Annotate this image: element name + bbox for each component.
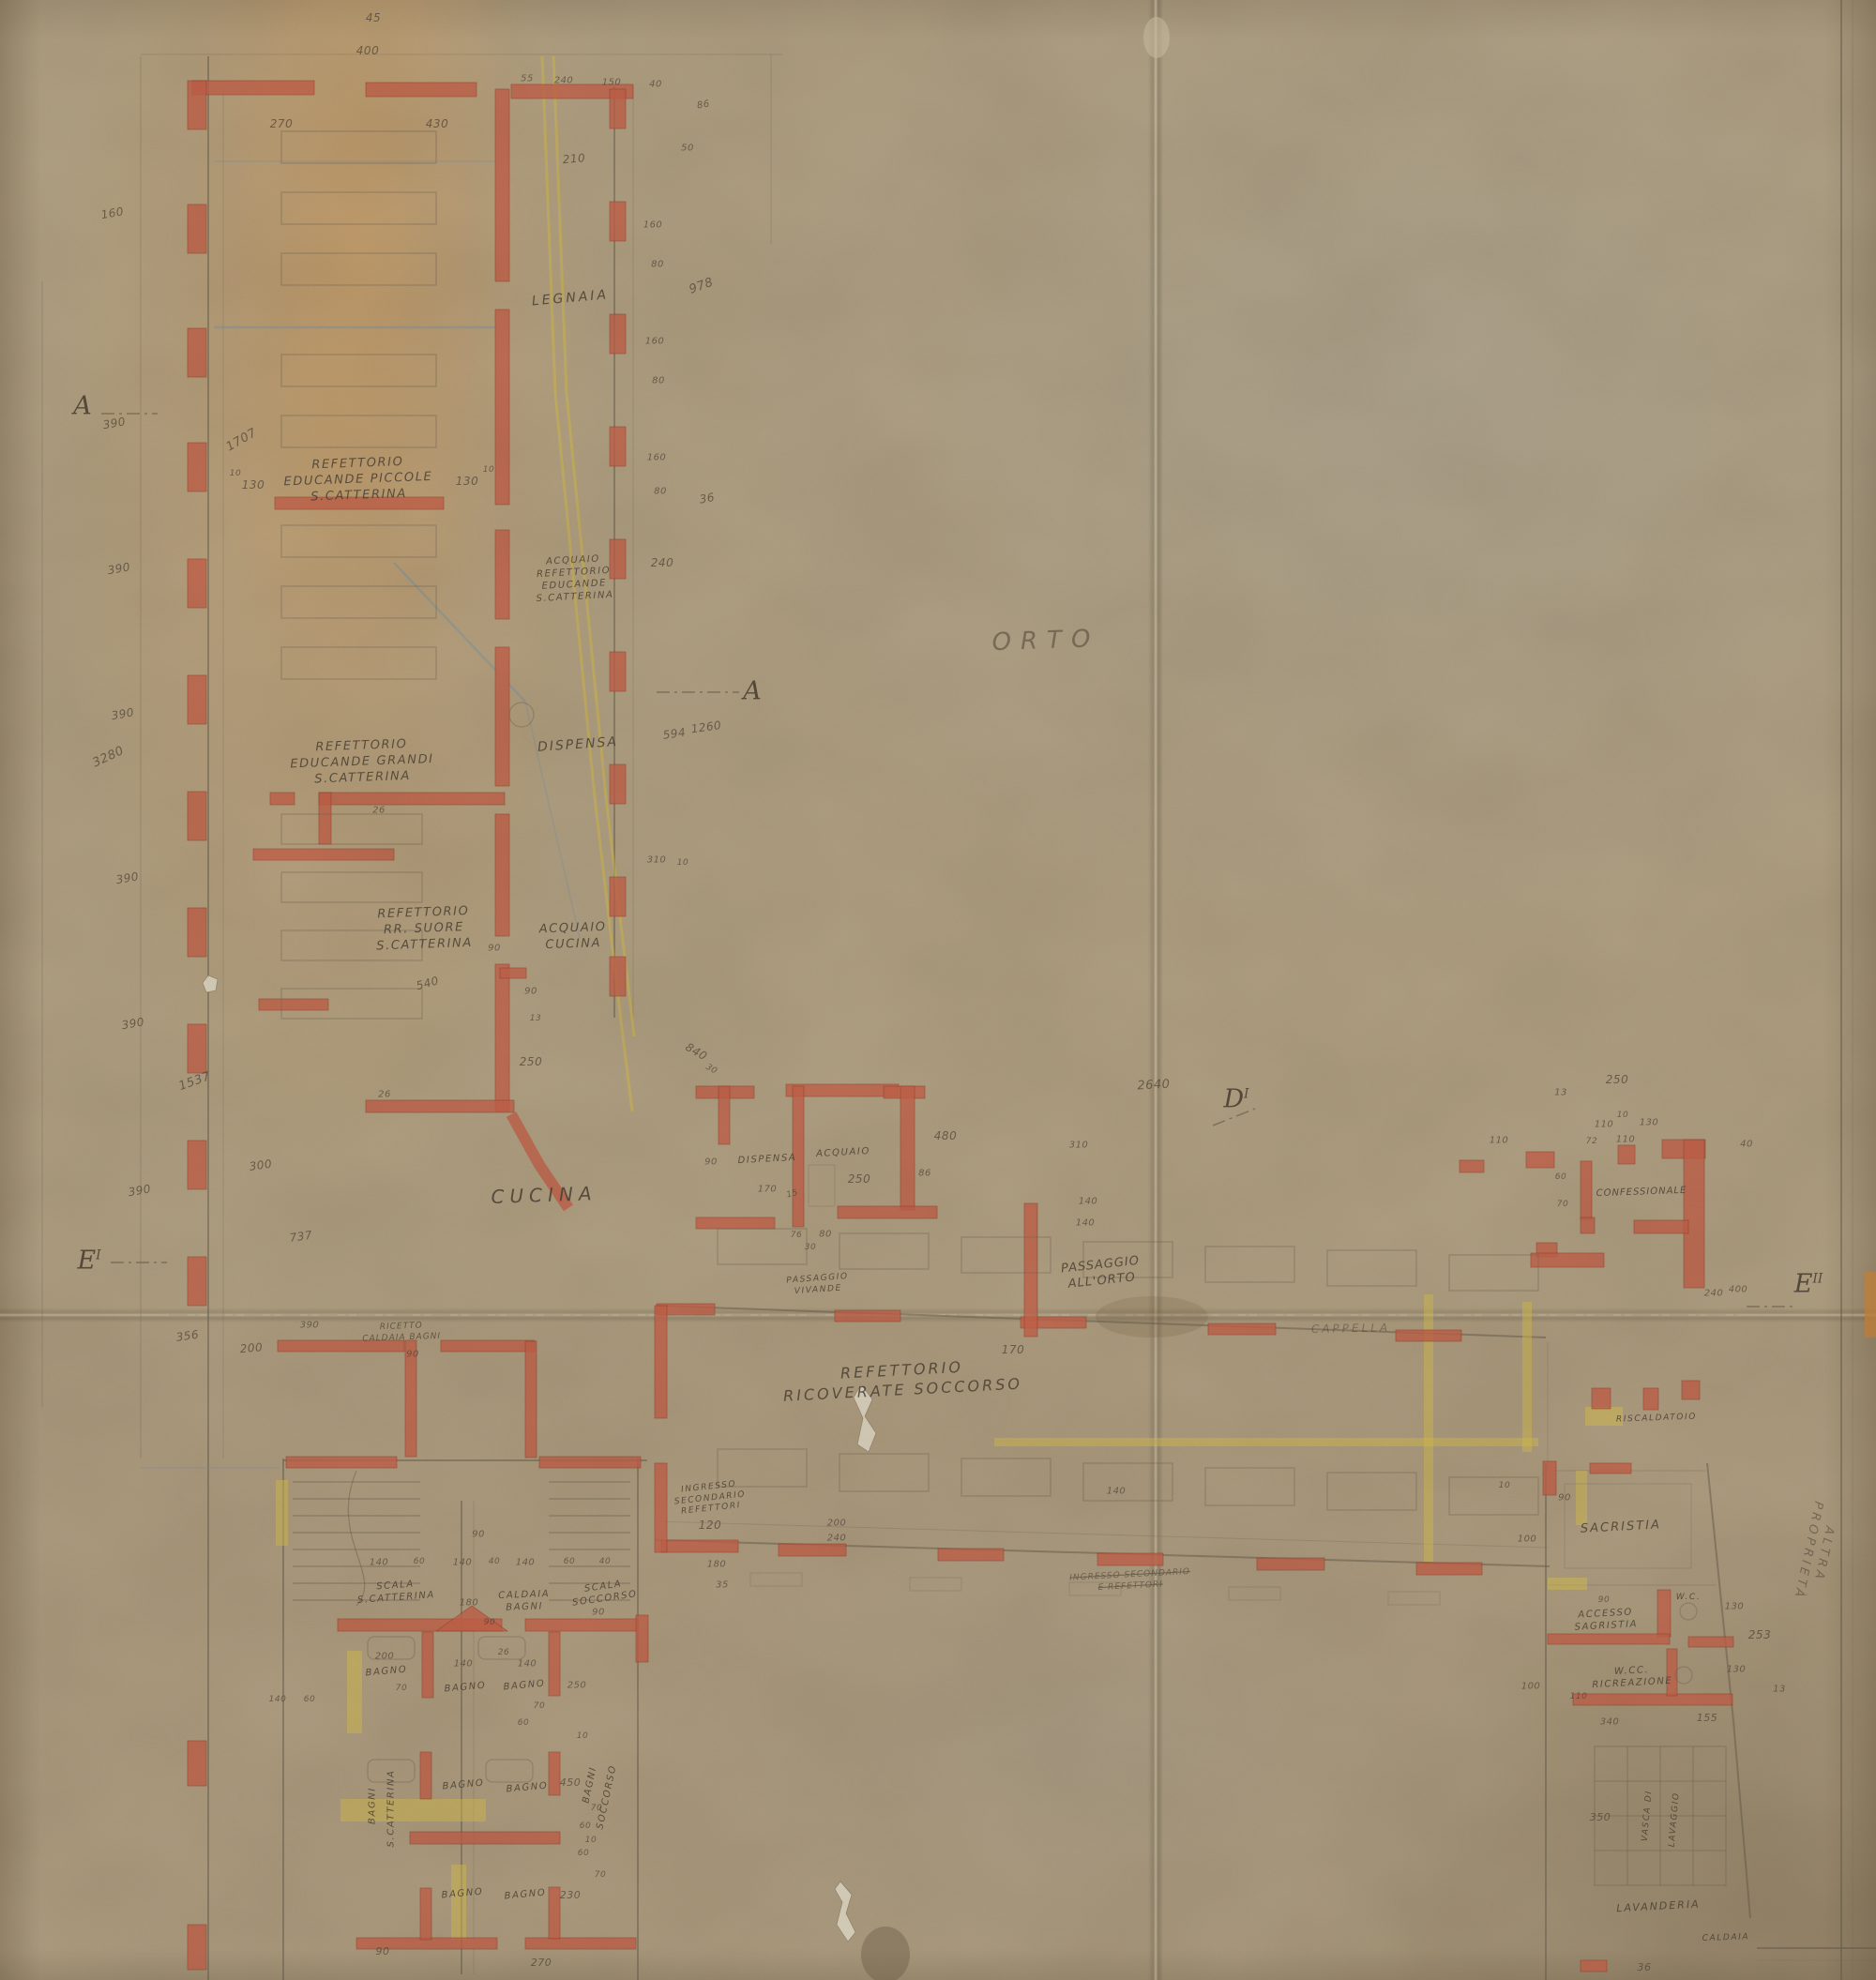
dimension-2640: 2640 xyxy=(1137,1078,1171,1096)
dimension-90: 90 xyxy=(406,1349,419,1361)
room-label-bagno: BAGNO xyxy=(506,1780,549,1796)
dimension-140: 140 xyxy=(1079,1196,1098,1208)
dimension-450: 450 xyxy=(560,1776,582,1790)
room-label-accesso-sagristia: ACCESSO SAGRISTIA xyxy=(1574,1606,1639,1633)
dimension-140: 140 xyxy=(454,1658,474,1670)
dimension-72: 72 xyxy=(1586,1137,1597,1148)
dimension-140: 140 xyxy=(370,1557,389,1569)
dimension-130: 130 xyxy=(1727,1664,1747,1676)
dimension-10: 10 xyxy=(1499,1481,1510,1492)
dimension-90: 90 xyxy=(1558,1492,1571,1504)
dimension-110: 110 xyxy=(1490,1135,1509,1147)
room-label-bagno: BAGNO xyxy=(504,1887,547,1903)
dimension-230: 230 xyxy=(560,1889,582,1902)
dimension-40: 40 xyxy=(1740,1139,1753,1151)
dimension-840: 840 xyxy=(683,1040,710,1065)
dimension-55: 55 xyxy=(521,73,534,85)
section-marker-eii: EII xyxy=(1794,1267,1823,1300)
dimension-10: 10 xyxy=(677,858,688,869)
dimension-180: 180 xyxy=(460,1597,479,1610)
dimension-160: 160 xyxy=(100,204,126,223)
section-letter: E xyxy=(1794,1269,1813,1298)
room-label-caldaia: CALDAIA xyxy=(1702,1932,1750,1944)
dimension-130: 130 xyxy=(1725,1601,1745,1613)
section-letter: D xyxy=(1224,1084,1245,1113)
dimension-86: 86 xyxy=(918,1168,931,1180)
room-label-vasca-di: VASCA DI xyxy=(1641,1790,1656,1842)
room-label-w-cc-ricreazione: W.CC. RICREAZIONE xyxy=(1591,1663,1672,1691)
dimension-737: 737 xyxy=(289,1229,313,1247)
dimension-86: 86 xyxy=(696,98,711,112)
room-label-passaggio-all-orto: PASSAGGIO ALL'ORTO xyxy=(1060,1254,1142,1293)
dimension-250: 250 xyxy=(1606,1073,1628,1088)
dimension-13: 13 xyxy=(530,1014,541,1025)
dimension-356: 356 xyxy=(175,1328,200,1346)
dimension-240: 240 xyxy=(651,556,673,571)
dimension-150: 150 xyxy=(602,77,622,89)
dimension-3280: 3280 xyxy=(91,744,128,772)
section-marker-a: A xyxy=(73,389,92,422)
dimension-90: 90 xyxy=(1598,1595,1610,1607)
dimension-13: 13 xyxy=(1773,1684,1786,1696)
dimension-1260: 1260 xyxy=(690,718,722,737)
dimension-70: 70 xyxy=(396,1684,407,1695)
section-index: I xyxy=(1244,1086,1248,1101)
section-marker-ei: EI xyxy=(77,1244,100,1277)
dimension-270: 270 xyxy=(270,117,293,132)
dimension-15: 15 xyxy=(785,1188,799,1202)
dimension-60: 60 xyxy=(304,1695,315,1706)
room-label-scala-s-catterina: SCALA S.CATTERINA xyxy=(356,1577,436,1607)
dimension-40: 40 xyxy=(489,1557,500,1568)
section-letter: E xyxy=(77,1246,96,1275)
room-label-acquaio: ACQUAIO xyxy=(816,1145,870,1160)
room-label-cucina: CUCINA xyxy=(491,1181,598,1209)
dimension-200: 200 xyxy=(827,1518,847,1530)
dimension-45: 45 xyxy=(366,11,381,26)
note-cappella: CAPPELLA xyxy=(1311,1321,1390,1337)
dimension-400: 400 xyxy=(1729,1284,1748,1296)
dimension-30: 30 xyxy=(805,1243,816,1254)
dimension-26: 26 xyxy=(498,1648,509,1659)
dimension-340: 340 xyxy=(1600,1716,1620,1729)
dimension-10: 10 xyxy=(585,1836,597,1847)
room-label-bagno: BAGNO xyxy=(444,1680,487,1696)
dimension-76: 76 xyxy=(791,1231,802,1242)
room-label-acquaio-refettorio-educande-s-catt: ACQUAIO REFETTORIO EDUCANDE S.CATTERINA xyxy=(534,552,614,605)
dimension-90: 90 xyxy=(524,986,537,998)
room-label-refettorio-rr-suore-s-catterina: REFETTORIO RR. SUORE S.CATTERINA xyxy=(375,904,473,955)
dimension-300: 300 xyxy=(249,1157,273,1175)
dimension-26: 26 xyxy=(372,805,386,817)
room-label-lavaggio: LAVAGGIO xyxy=(1668,1791,1684,1848)
dimension-90: 90 xyxy=(704,1156,718,1169)
dimension-390: 390 xyxy=(300,1320,320,1332)
dimension-250: 250 xyxy=(848,1172,870,1187)
dimension-390: 390 xyxy=(128,1182,153,1201)
dimension-80: 80 xyxy=(652,375,665,387)
section-index: II xyxy=(1813,1271,1823,1286)
room-label-refettorio-ricoverate-soccorso: REFETTORIO RICOVERATE SOCCORSO xyxy=(782,1355,1023,1407)
dimension-390: 390 xyxy=(115,869,141,888)
dimension-310: 310 xyxy=(647,854,667,867)
dimension-240: 240 xyxy=(827,1533,847,1545)
dimension-36: 36 xyxy=(1638,1961,1652,1974)
dimension-430: 430 xyxy=(426,117,448,132)
dimension-10: 10 xyxy=(483,465,494,476)
section-letter: A xyxy=(743,676,762,705)
dimension-10: 10 xyxy=(577,1731,588,1743)
dimension-90: 90 xyxy=(592,1607,605,1619)
dimension-60: 60 xyxy=(564,1557,575,1568)
dimension-1707: 1707 xyxy=(224,426,261,456)
dimension-170: 170 xyxy=(1002,1343,1024,1358)
dimension-390: 390 xyxy=(121,1015,146,1034)
note-ingresso-secondario-e-refettori: INGRESSO SECONDARIO E REFETTORI xyxy=(1069,1567,1191,1595)
dimension-130: 130 xyxy=(242,478,265,493)
room-label-caldaia-bagni: CALDAIA BAGNI xyxy=(498,1588,551,1614)
dimension-140: 140 xyxy=(516,1557,536,1569)
section-letter: A xyxy=(73,391,92,420)
floor-plan-sheet: LEGNAIAREFETTORIO EDUCANDE PICCOLE S.CAT… xyxy=(0,0,1876,1980)
dimension-200: 200 xyxy=(239,1340,264,1357)
room-label-acquaio-cucina: ACQUAIO CUCINA xyxy=(538,920,607,954)
dimension-40: 40 xyxy=(599,1557,611,1568)
room-label-ingresso-secondario-refettori: INGRESSO SECONDARIO REFETTORI xyxy=(673,1479,748,1519)
dimension-90: 90 xyxy=(376,1945,390,1958)
dimension-110: 110 xyxy=(1595,1119,1614,1131)
dimension-170: 170 xyxy=(758,1184,778,1196)
room-label-sacristia: SACRISTIA xyxy=(1581,1518,1662,1537)
dimension-250: 250 xyxy=(567,1680,587,1692)
dimension-160: 160 xyxy=(645,336,665,348)
room-label-dispensa: DISPENSA xyxy=(537,733,618,756)
room-label-bagni: BAGNI xyxy=(580,1765,599,1805)
dimension-130: 130 xyxy=(456,475,478,490)
room-label-bagno: BAGNO xyxy=(365,1664,408,1680)
room-label-scala-soccorso: SCALA SOCCORSO xyxy=(570,1576,639,1609)
dimension-978: 978 xyxy=(688,276,717,299)
annotation-layer: LEGNAIAREFETTORIO EDUCANDE PICCOLE S.CAT… xyxy=(0,0,1876,1980)
dimension-540: 540 xyxy=(415,974,441,993)
dimension-180: 180 xyxy=(707,1559,727,1571)
room-label-w-c: W.C. xyxy=(1676,1593,1702,1604)
room-label-bagno: BAGNO xyxy=(503,1678,546,1694)
dimension-120: 120 xyxy=(699,1519,721,1534)
room-label-refettorio-educande-piccole-s-catt: REFETTORIO EDUCANDE PICCOLE S.CATTERINA xyxy=(283,454,434,506)
note-ricetto-caldaia-bagni: RICETTO CALDAIA BAGNI xyxy=(362,1321,442,1345)
dimension-70: 70 xyxy=(591,1804,602,1815)
room-label-orto: ORTO xyxy=(991,624,1100,659)
room-label-bagni: BAGNI xyxy=(367,1787,379,1824)
dimension-90: 90 xyxy=(484,1618,495,1629)
dimension-140: 140 xyxy=(1107,1486,1127,1498)
dimension-480: 480 xyxy=(934,1129,957,1144)
dimension-110: 110 xyxy=(1616,1134,1636,1146)
dimension-140: 140 xyxy=(269,1695,287,1706)
dimension-90: 90 xyxy=(472,1529,485,1541)
room-label-lavanderia: LAVANDERIA xyxy=(1616,1898,1701,1916)
dimension-90: 90 xyxy=(488,943,501,955)
dimension-400: 400 xyxy=(356,44,379,59)
room-label-riscaldatoio: RISCALDATOIO xyxy=(1616,1413,1697,1427)
dimension-30: 30 xyxy=(703,1063,719,1078)
dimension-80: 80 xyxy=(651,259,664,271)
dimension-60: 60 xyxy=(1555,1172,1566,1184)
dimension-70: 70 xyxy=(1557,1200,1568,1211)
dimension-13: 13 xyxy=(1554,1087,1567,1099)
dimension-160: 160 xyxy=(643,219,663,232)
dimension-70: 70 xyxy=(595,1870,606,1882)
dimension-130: 130 xyxy=(1640,1117,1659,1129)
room-label-legnaia: LEGNAIA xyxy=(531,286,610,310)
dimension-60: 60 xyxy=(578,1849,589,1860)
dimension-350: 350 xyxy=(1590,1811,1611,1824)
dimension-140: 140 xyxy=(518,1658,537,1670)
dimension-240: 240 xyxy=(1704,1288,1724,1300)
room-label-bagno: BAGNO xyxy=(442,1777,485,1793)
room-label-passaggio-vivande: PASSAGGIO VIVANDE xyxy=(786,1272,850,1298)
dimension-10: 10 xyxy=(230,469,241,480)
note-altra-propriet: ALTRA PROPRIETÀ xyxy=(1789,1500,1840,1605)
section-marker-a: A xyxy=(743,674,762,707)
dimension-240: 240 xyxy=(554,75,574,87)
dimension-310: 310 xyxy=(1069,1140,1089,1152)
dimension-60: 60 xyxy=(414,1557,425,1568)
section-marker-di: DI xyxy=(1224,1082,1249,1115)
dimension-80: 80 xyxy=(654,486,667,498)
dimension-50: 50 xyxy=(681,143,694,155)
room-label-refettorio-educande-grandi-s-catte: REFETTORIO EDUCANDE GRANDI S.CATTERINA xyxy=(289,736,434,789)
dimension-110: 110 xyxy=(1570,1692,1588,1703)
dimension-160: 160 xyxy=(647,452,667,464)
dimension-390: 390 xyxy=(111,705,136,724)
room-label-dispensa: DISPENSA xyxy=(737,1152,796,1167)
dimension-35: 35 xyxy=(716,1579,729,1592)
room-label-s-catterina: S.CATTERINA xyxy=(386,1770,398,1848)
dimension-594: 594 xyxy=(662,726,687,744)
dimension-40: 40 xyxy=(649,79,662,91)
room-label-soccorso: SOCCORSO xyxy=(594,1763,619,1830)
dimension-210: 210 xyxy=(562,151,586,168)
dimension-36: 36 xyxy=(699,491,717,507)
dimension-390: 390 xyxy=(107,560,132,579)
dimension-1537: 1537 xyxy=(177,1069,214,1096)
dimension-100: 100 xyxy=(1521,1681,1541,1693)
dimension-200: 200 xyxy=(375,1651,395,1663)
dimension-100: 100 xyxy=(1518,1534,1537,1546)
dimension-155: 155 xyxy=(1697,1712,1718,1725)
room-label-confessionale: CONFESSIONALE xyxy=(1596,1185,1687,1200)
dimension-140: 140 xyxy=(1076,1217,1096,1230)
dimension-253: 253 xyxy=(1748,1628,1771,1643)
section-index: I xyxy=(96,1247,100,1262)
dimension-60: 60 xyxy=(518,1718,529,1730)
dimension-250: 250 xyxy=(520,1055,542,1070)
dimension-10: 10 xyxy=(1617,1111,1628,1122)
dimension-80: 80 xyxy=(819,1229,832,1241)
dimension-140: 140 xyxy=(453,1557,473,1569)
dimension-270: 270 xyxy=(531,1957,552,1970)
dimension-390: 390 xyxy=(102,415,128,433)
dimension-26: 26 xyxy=(378,1089,391,1101)
room-label-bagno: BAGNO xyxy=(441,1886,484,1902)
dimension-70: 70 xyxy=(534,1701,545,1713)
dimension-60: 60 xyxy=(580,1821,591,1833)
